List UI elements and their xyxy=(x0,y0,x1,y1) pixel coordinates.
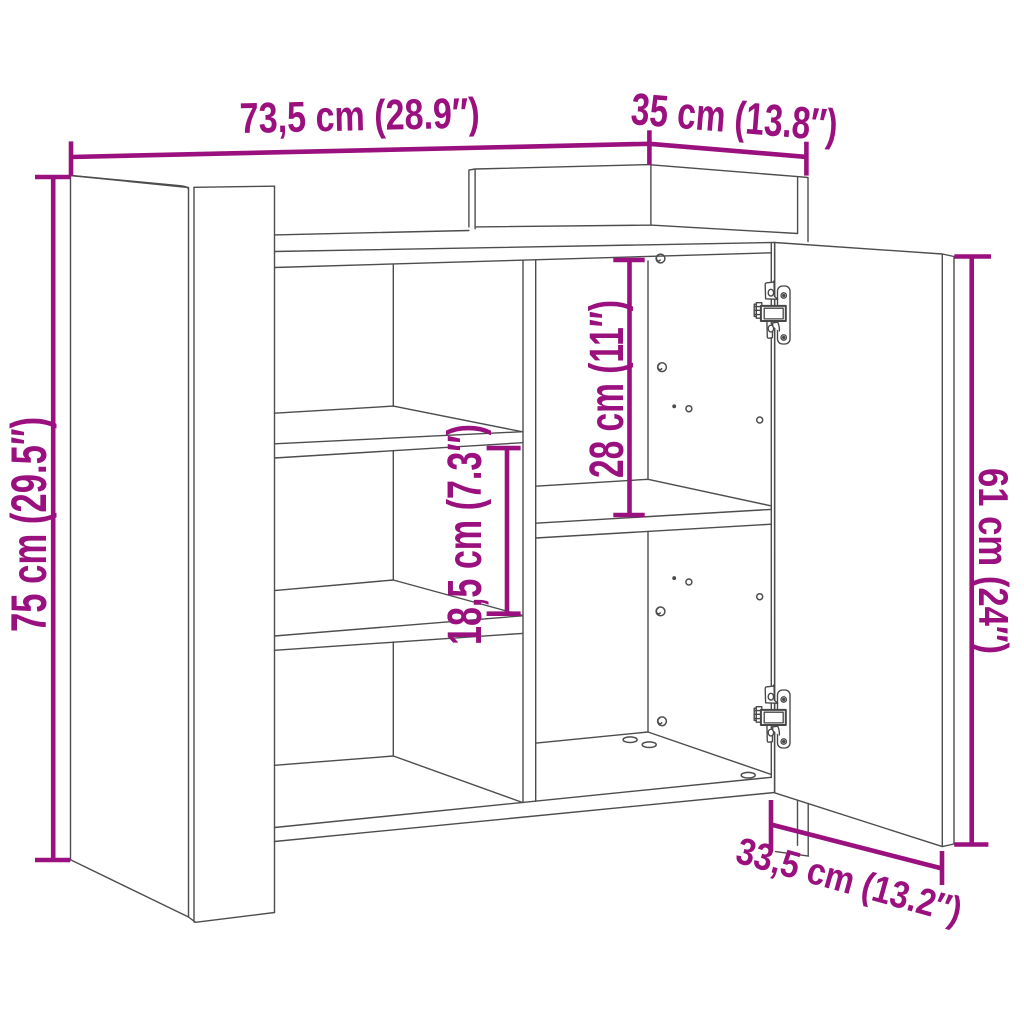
svg-text:28 cm (11″): 28 cm (11″) xyxy=(581,300,634,478)
svg-text:73,5 cm (28.9″): 73,5 cm (28.9″) xyxy=(239,89,480,143)
svg-text:75 cm (29.5″): 75 cm (29.5″) xyxy=(1,417,57,632)
svg-text:18,5 cm (7.3″): 18,5 cm (7.3″) xyxy=(439,424,492,645)
svg-text:61 cm (24″): 61 cm (24″) xyxy=(970,468,1017,654)
